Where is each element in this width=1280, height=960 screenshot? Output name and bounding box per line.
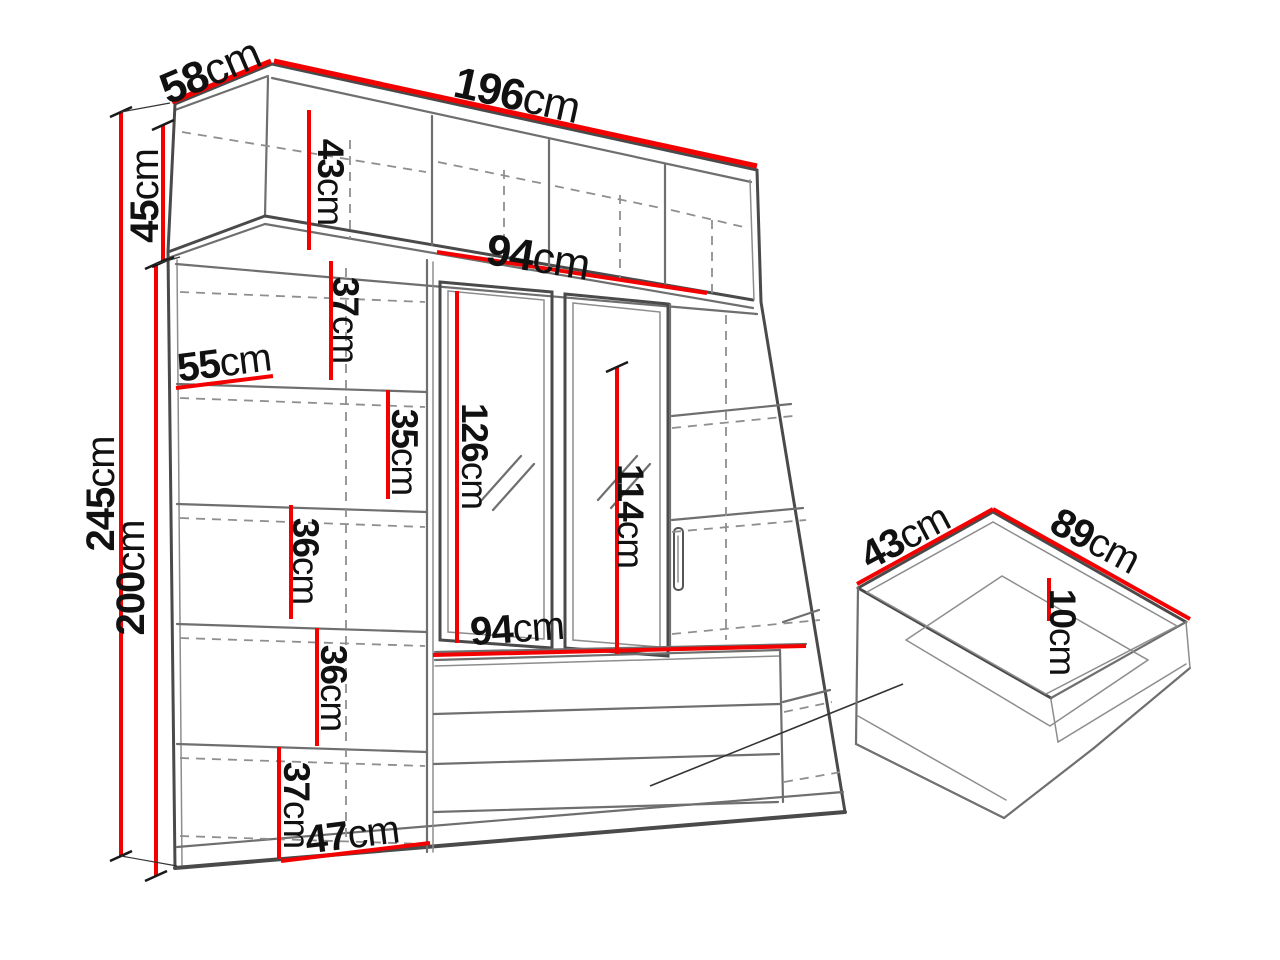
shelf-line [177,744,427,752]
drawer-right-wall-edge [1186,622,1190,668]
drawer-floor [906,576,1148,726]
hidden-line [784,772,841,782]
extension-line [121,856,177,866]
dim-94cm-top: 94cm [483,225,593,290]
dim-43cm-top-compartment: 43cm [311,139,352,225]
shelf-line [783,690,830,702]
drawer-front-panel-line [858,716,1006,800]
shelf-line [672,404,791,416]
drawer-divider [434,704,780,714]
wardrobe-dimension-diagram: 58cm 196cm 45cm 245cm 200cm 43cm 94cm 37… [0,0,1280,960]
hidden-line [438,162,545,184]
dim-94cm-bottom: 94cm [469,604,566,654]
hidden-line [555,186,661,208]
drawer-front-bottom-edge [856,744,1004,818]
dim-126cm-left-mirror-door: 126cm [455,403,496,509]
hidden-line [784,702,832,712]
shelf-line [177,624,427,632]
right-shelf-column [670,304,841,782]
hidden-line [671,210,748,228]
drawer-right-wall-bottom [1051,664,1186,742]
cabinet-bottom-side-double [168,224,265,258]
shelf-line [177,504,427,512]
right-sliver [750,180,754,300]
dim-10cm-drawer-height: 10cm [1043,589,1084,675]
dim-43cm-drawer-depth: 43cm [853,496,957,579]
hidden-line [672,520,806,532]
hidden-line [180,292,425,302]
diagram-svg: 58cm 196cm 45cm 245cm 200cm 43cm 94cm 37… [0,0,1280,960]
front-left-edge [265,78,268,216]
side-left-edge [168,104,175,252]
pointer-line [650,684,903,786]
dim-35cm-shelf: 35cm [385,409,426,495]
hidden-line [182,132,426,172]
drawer-rim-inner-front [867,592,1177,694]
dim-58cm-depth: 58cm [153,28,268,114]
hidden-line [180,638,425,646]
body-right-edge [757,170,845,812]
drawer-front-left-edge [856,588,858,744]
dim-200cm-body-height: 200cm [109,520,153,635]
drawer-rail-edge [1004,748,1094,818]
side-bottom-edge [168,216,265,252]
dimension-labels: 58cm 196cm 45cm 245cm 200cm 43cm 94cm 37… [79,28,1147,862]
dim-36cm-shelf-a: 36cm [286,518,327,604]
drawer-front-top-edge [858,588,1051,698]
body-left-edge [168,252,175,868]
hidden-line [672,416,793,428]
dim-55cm-shelf-width: 55cm [175,335,273,390]
drawer-rail-edge [1094,668,1190,748]
dim-114cm-right-mirror-door: 114cm [611,464,652,568]
hidden-line [672,620,820,634]
drawer-fronts [434,650,783,812]
dim-45cm-top-section-height: 45cm [123,149,167,243]
shelf-line [672,508,803,520]
dim-37cm-upper-shelf: 37cm [326,277,367,363]
drawer-right-edge [780,650,783,802]
dim-36cm-shelf-b: 36cm [314,645,355,731]
